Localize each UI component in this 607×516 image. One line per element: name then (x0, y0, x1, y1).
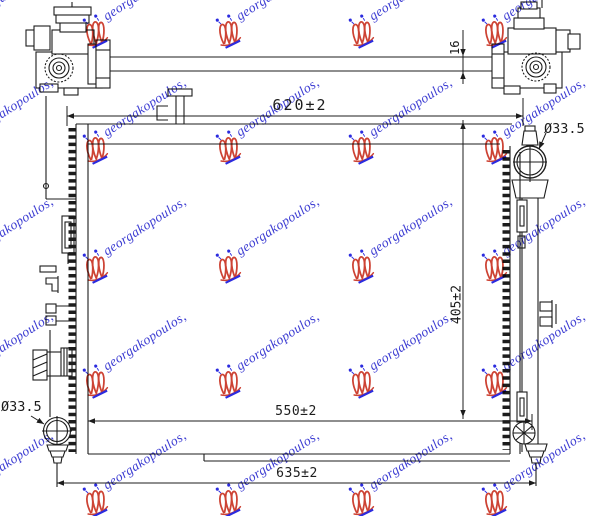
top-left-bracket (157, 89, 192, 124)
drain-plug-left (42, 416, 72, 487)
dimension-label-height: 405±2 (450, 278, 465, 332)
dimension-label-filler-cap-diameter: Ø33.5 (544, 121, 585, 137)
crossbar-right-fitting (492, 0, 580, 94)
left-serrated-edge (72, 124, 88, 454)
right-tank (512, 126, 556, 452)
crossbar-left-fitting (26, 2, 110, 95)
dimension-label-top-width: 620±2 (258, 96, 342, 114)
dimension-label-core-width: 550±2 (254, 404, 338, 419)
radiator-line-drawing (0, 0, 607, 516)
dimension-label-drain-plug-diameter: Ø33.5 (1, 399, 42, 415)
crossbar (96, 57, 500, 71)
drain-valve-right (513, 422, 547, 486)
dimension-label-overall-width: 635±2 (255, 466, 339, 481)
drawing-canvas: georgakopoulos, georgakopoulos, georgako… (0, 0, 607, 516)
dimension-label-crossbar-thickness: 16 (448, 27, 462, 55)
